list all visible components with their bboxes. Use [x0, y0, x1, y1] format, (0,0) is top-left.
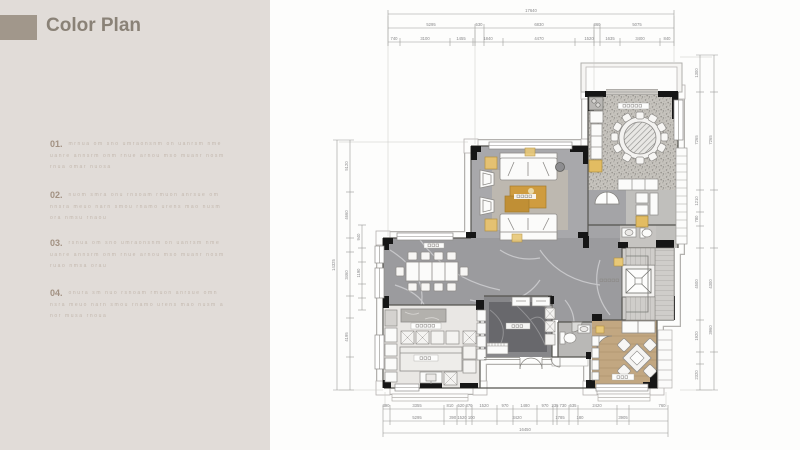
svg-text:370: 370: [466, 403, 474, 408]
svg-text:940: 940: [356, 233, 361, 241]
svg-text:5075: 5075: [632, 22, 642, 27]
svg-text:1210: 1210: [694, 196, 699, 206]
svg-text:520: 520: [458, 403, 466, 408]
svg-text:2420: 2420: [592, 403, 602, 408]
svg-text:16450: 16450: [519, 427, 531, 432]
svg-text:4195: 4195: [344, 332, 349, 342]
svg-text:7265: 7265: [708, 135, 713, 145]
svg-text:390: 390: [383, 403, 391, 408]
svg-text:5295: 5295: [412, 415, 422, 420]
svg-text:1635: 1635: [605, 36, 615, 41]
svg-text:4500: 4500: [694, 279, 699, 289]
svg-text:1520: 1520: [479, 403, 489, 408]
svg-text:740: 740: [391, 36, 399, 41]
svg-text:1190: 1190: [356, 268, 361, 278]
svg-text:970: 970: [542, 403, 550, 408]
svg-text:1920: 1920: [694, 331, 699, 341]
svg-text:535: 535: [570, 403, 578, 408]
svg-text:3420: 3420: [512, 415, 522, 420]
svg-text:360: 360: [594, 22, 602, 27]
svg-text:7265: 7265: [694, 135, 699, 145]
svg-text:3100: 3100: [420, 36, 430, 41]
svg-text:810: 810: [447, 403, 455, 408]
svg-text:1455: 1455: [456, 36, 466, 41]
svg-text:235: 235: [552, 403, 560, 408]
svg-text:3460: 3460: [344, 270, 349, 280]
svg-text:1785: 1785: [555, 415, 565, 420]
svg-text:1520: 1520: [584, 36, 594, 41]
svg-text:780: 780: [694, 215, 699, 223]
svg-text:760: 760: [659, 403, 667, 408]
svg-text:840: 840: [664, 36, 672, 41]
svg-text:4300: 4300: [708, 279, 713, 289]
svg-text:180: 180: [577, 415, 585, 420]
svg-text:3905: 3905: [618, 415, 628, 420]
svg-text:1300: 1300: [694, 68, 699, 78]
svg-text:730: 730: [560, 403, 568, 408]
svg-text:6830: 6830: [534, 22, 544, 27]
svg-text:4660: 4660: [344, 210, 349, 220]
svg-text:970: 970: [502, 403, 510, 408]
svg-text:3960: 3960: [708, 325, 713, 335]
svg-text:530: 530: [476, 22, 484, 27]
svg-text:1840: 1840: [483, 36, 493, 41]
svg-text:1480: 1480: [520, 403, 530, 408]
svg-text:14325: 14325: [331, 259, 336, 271]
svg-text:390 1520 100: 390 1520 100: [449, 415, 475, 420]
svg-text:3355: 3355: [412, 403, 422, 408]
svg-text:2320: 2320: [694, 370, 699, 380]
svg-text:5120: 5120: [344, 161, 349, 171]
svg-text:17640: 17640: [525, 8, 537, 13]
svg-text:5295: 5295: [426, 22, 436, 27]
svg-text:3400: 3400: [635, 36, 645, 41]
svg-text:4470: 4470: [534, 36, 544, 41]
